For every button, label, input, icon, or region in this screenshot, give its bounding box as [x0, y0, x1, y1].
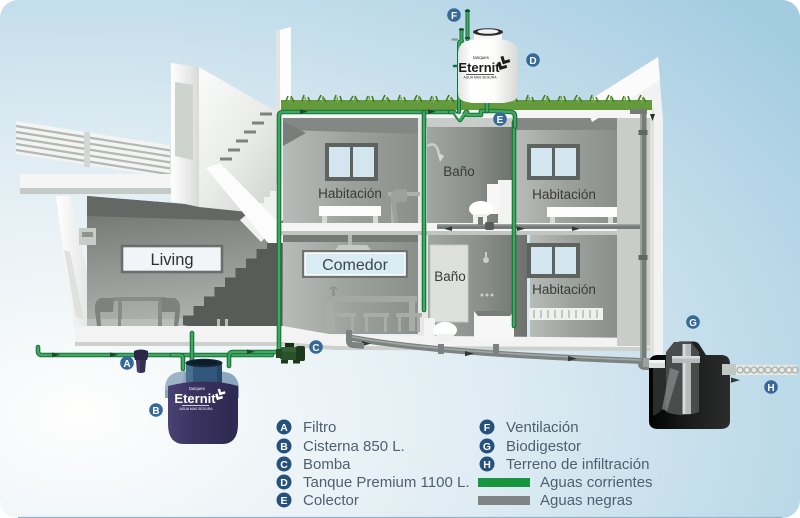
svg-text:D: D [280, 477, 288, 489]
svg-text:H: H [483, 459, 491, 471]
svg-text:Filtro: Filtro [303, 419, 336, 436]
svg-text:E: E [280, 495, 287, 507]
svg-text:A: A [123, 359, 130, 370]
svg-text:Eternit: Eternit [174, 391, 216, 406]
svg-text:Cisterna 850 L.: Cisterna 850 L. [303, 438, 405, 455]
svg-text:Living: Living [150, 251, 193, 269]
svg-text:Colector: Colector [303, 492, 359, 509]
svg-text:G: G [483, 441, 491, 453]
svg-text:C: C [280, 459, 288, 471]
svg-text:Habitación: Habitación [532, 187, 596, 202]
svg-text:C: C [312, 343, 319, 354]
svg-text:Biodigestor: Biodigestor [506, 438, 581, 455]
svg-text:F: F [451, 11, 457, 22]
svg-text:D: D [529, 56, 536, 67]
svg-text:B: B [152, 406, 159, 417]
svg-text:Baño: Baño [434, 269, 466, 284]
svg-text:B: B [280, 441, 288, 453]
svg-text:AGUA MAS SEGURA: AGUA MAS SEGURA [464, 76, 498, 80]
svg-text:Baño: Baño [443, 164, 475, 179]
svg-text:Habitación: Habitación [318, 186, 382, 201]
svg-text:E: E [497, 115, 504, 126]
svg-text:Terreno de infiltración: Terreno de infiltración [506, 456, 649, 473]
svg-text:Bomba: Bomba [303, 456, 351, 473]
svg-text:H: H [767, 383, 774, 394]
svg-text:Aguas corrientes: Aguas corrientes [540, 474, 653, 491]
svg-text:Eternit: Eternit [458, 60, 500, 75]
svg-text:Ventilación: Ventilación [506, 419, 579, 436]
svg-text:F: F [484, 422, 491, 434]
svg-text:AGUA MAS SEGURA: AGUA MAS SEGURA [180, 407, 214, 411]
svg-text:Habitación: Habitación [532, 282, 596, 297]
svg-text:G: G [689, 318, 697, 329]
svg-text:A: A [280, 422, 288, 434]
svg-text:Tanque Premium 1100 L.: Tanque Premium 1100 L. [303, 474, 470, 491]
svg-text:Comedor: Comedor [322, 257, 388, 274]
svg-text:Aguas negras: Aguas negras [540, 492, 633, 509]
